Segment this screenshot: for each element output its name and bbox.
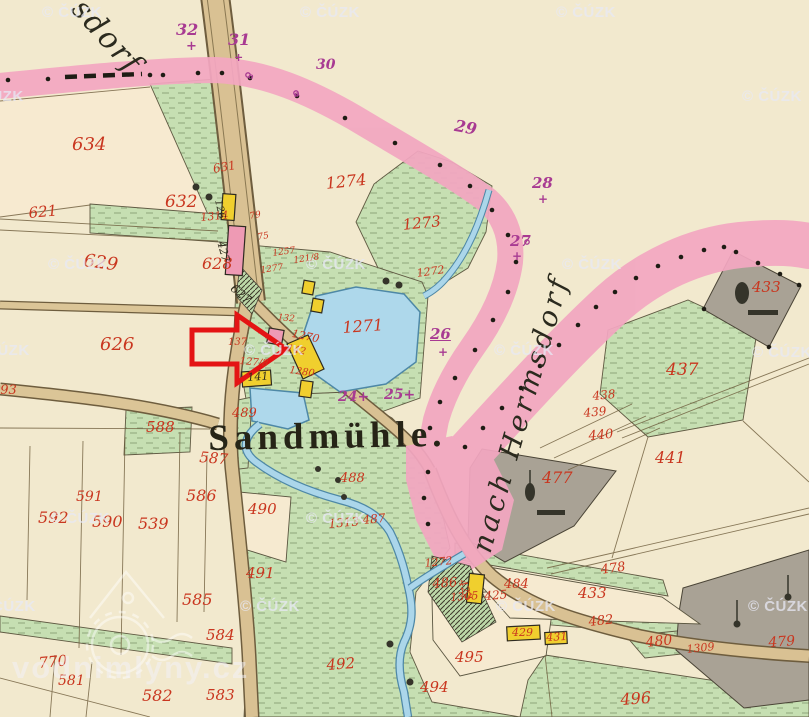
building-431 xyxy=(545,631,568,644)
map-canvas xyxy=(0,0,809,717)
building-427 xyxy=(225,226,245,276)
building-429 xyxy=(507,625,541,641)
building-423 xyxy=(466,573,484,603)
cadastral-map: 6346326316216296286265931274127312721271… xyxy=(0,0,809,717)
